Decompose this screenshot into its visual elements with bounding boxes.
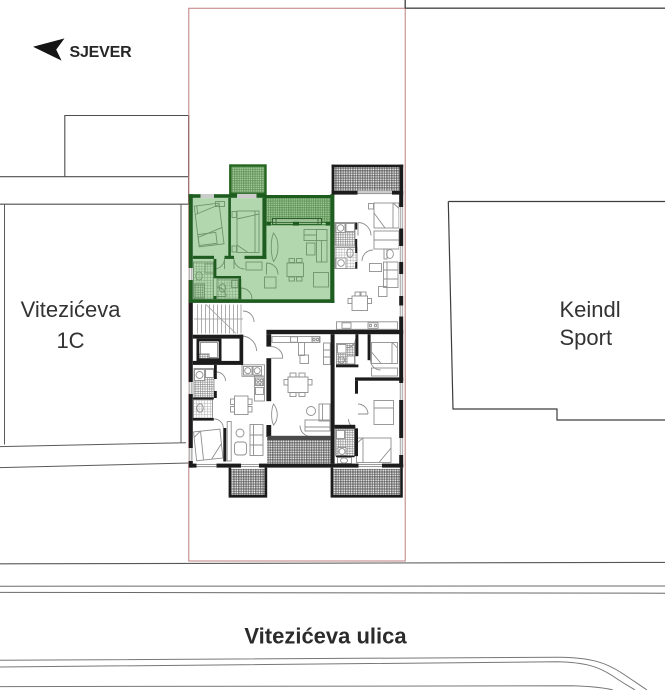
svg-text:Sport: Sport — [560, 325, 613, 350]
svg-text:SJEVER: SJEVER — [70, 44, 133, 61]
svg-text:1C: 1C — [56, 328, 84, 353]
svg-text:Vitezićeva ulica: Vitezićeva ulica — [244, 624, 407, 649]
svg-text:Keindl: Keindl — [560, 297, 621, 322]
svg-text:Vitezićeva: Vitezićeva — [21, 297, 122, 322]
